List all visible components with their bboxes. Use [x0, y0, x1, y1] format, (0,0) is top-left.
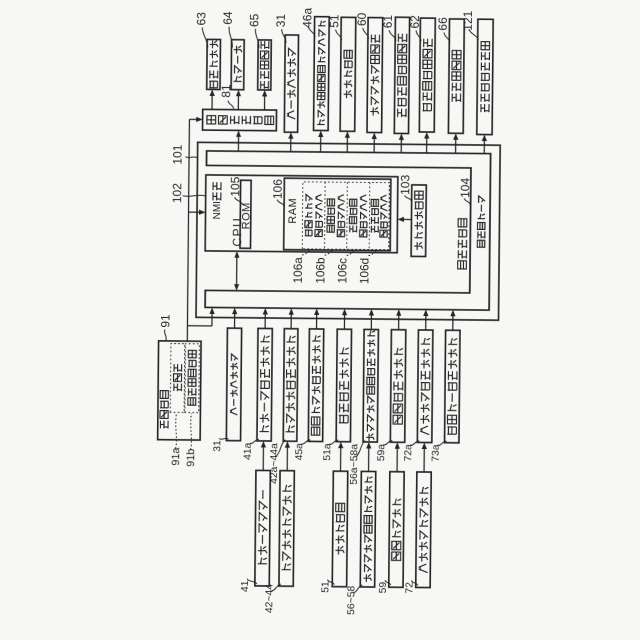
svg-text:105: 105 — [228, 176, 242, 196]
svg-text:104: 104 — [458, 177, 472, 197]
svg-text:51: 51 — [321, 581, 332, 593]
svg-text:45a: 45a — [294, 443, 305, 461]
svg-text:NMI: NMI — [212, 201, 223, 219]
svg-text:91: 91 — [158, 314, 172, 328]
svg-text:102: 102 — [170, 183, 184, 203]
svg-text:59: 59 — [378, 582, 389, 594]
svg-text:106b: 106b — [314, 257, 328, 284]
svg-text:101: 101 — [170, 144, 184, 164]
svg-text:73a: 73a — [431, 444, 442, 462]
svg-text:63: 63 — [194, 12, 208, 26]
svg-text:RAM: RAM — [287, 198, 299, 224]
svg-text:51: 51 — [328, 14, 342, 28]
svg-text:91a: 91a — [170, 448, 182, 466]
svg-text:81: 81 — [219, 84, 233, 98]
svg-text:106: 106 — [270, 179, 284, 199]
svg-text:60: 60 — [355, 12, 369, 26]
svg-text:ROM: ROM — [240, 202, 252, 229]
svg-text:56~58: 56~58 — [346, 585, 357, 615]
svg-text:46a: 46a — [300, 7, 314, 27]
svg-text:64: 64 — [221, 11, 235, 25]
svg-text:42~44: 42~44 — [264, 584, 275, 614]
svg-text:106c: 106c — [336, 258, 350, 284]
svg-text:121: 121 — [461, 10, 475, 30]
svg-text:41a: 41a — [243, 442, 254, 460]
svg-text:106d: 106d — [357, 258, 371, 284]
svg-text:41: 41 — [240, 580, 251, 592]
svg-text:59a: 59a — [376, 444, 387, 462]
svg-text:91b: 91b — [185, 449, 197, 467]
svg-text:106a: 106a — [291, 257, 305, 284]
svg-text:62: 62 — [408, 15, 422, 29]
svg-text:31: 31 — [274, 14, 288, 28]
svg-text:103: 103 — [398, 174, 412, 194]
svg-text:51a: 51a — [322, 443, 333, 461]
svg-text:72: 72 — [405, 582, 416, 594]
svg-text:65: 65 — [247, 13, 261, 27]
svg-text:61: 61 — [381, 15, 395, 29]
svg-text:31: 31 — [212, 440, 223, 452]
svg-text:72a: 72a — [403, 444, 414, 462]
svg-text:56a~58a: 56a~58a — [349, 444, 360, 485]
svg-text:66: 66 — [436, 17, 450, 31]
